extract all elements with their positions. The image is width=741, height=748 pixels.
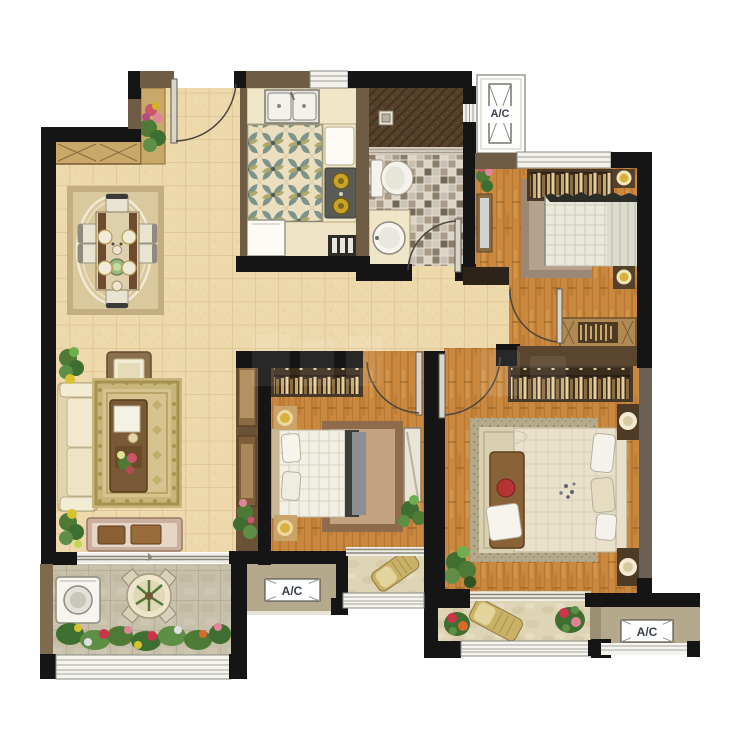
- svg-text:A/C: A/C: [491, 108, 510, 120]
- svg-text:A/C: A/C: [637, 625, 658, 639]
- svg-text:A/C: A/C: [282, 584, 303, 598]
